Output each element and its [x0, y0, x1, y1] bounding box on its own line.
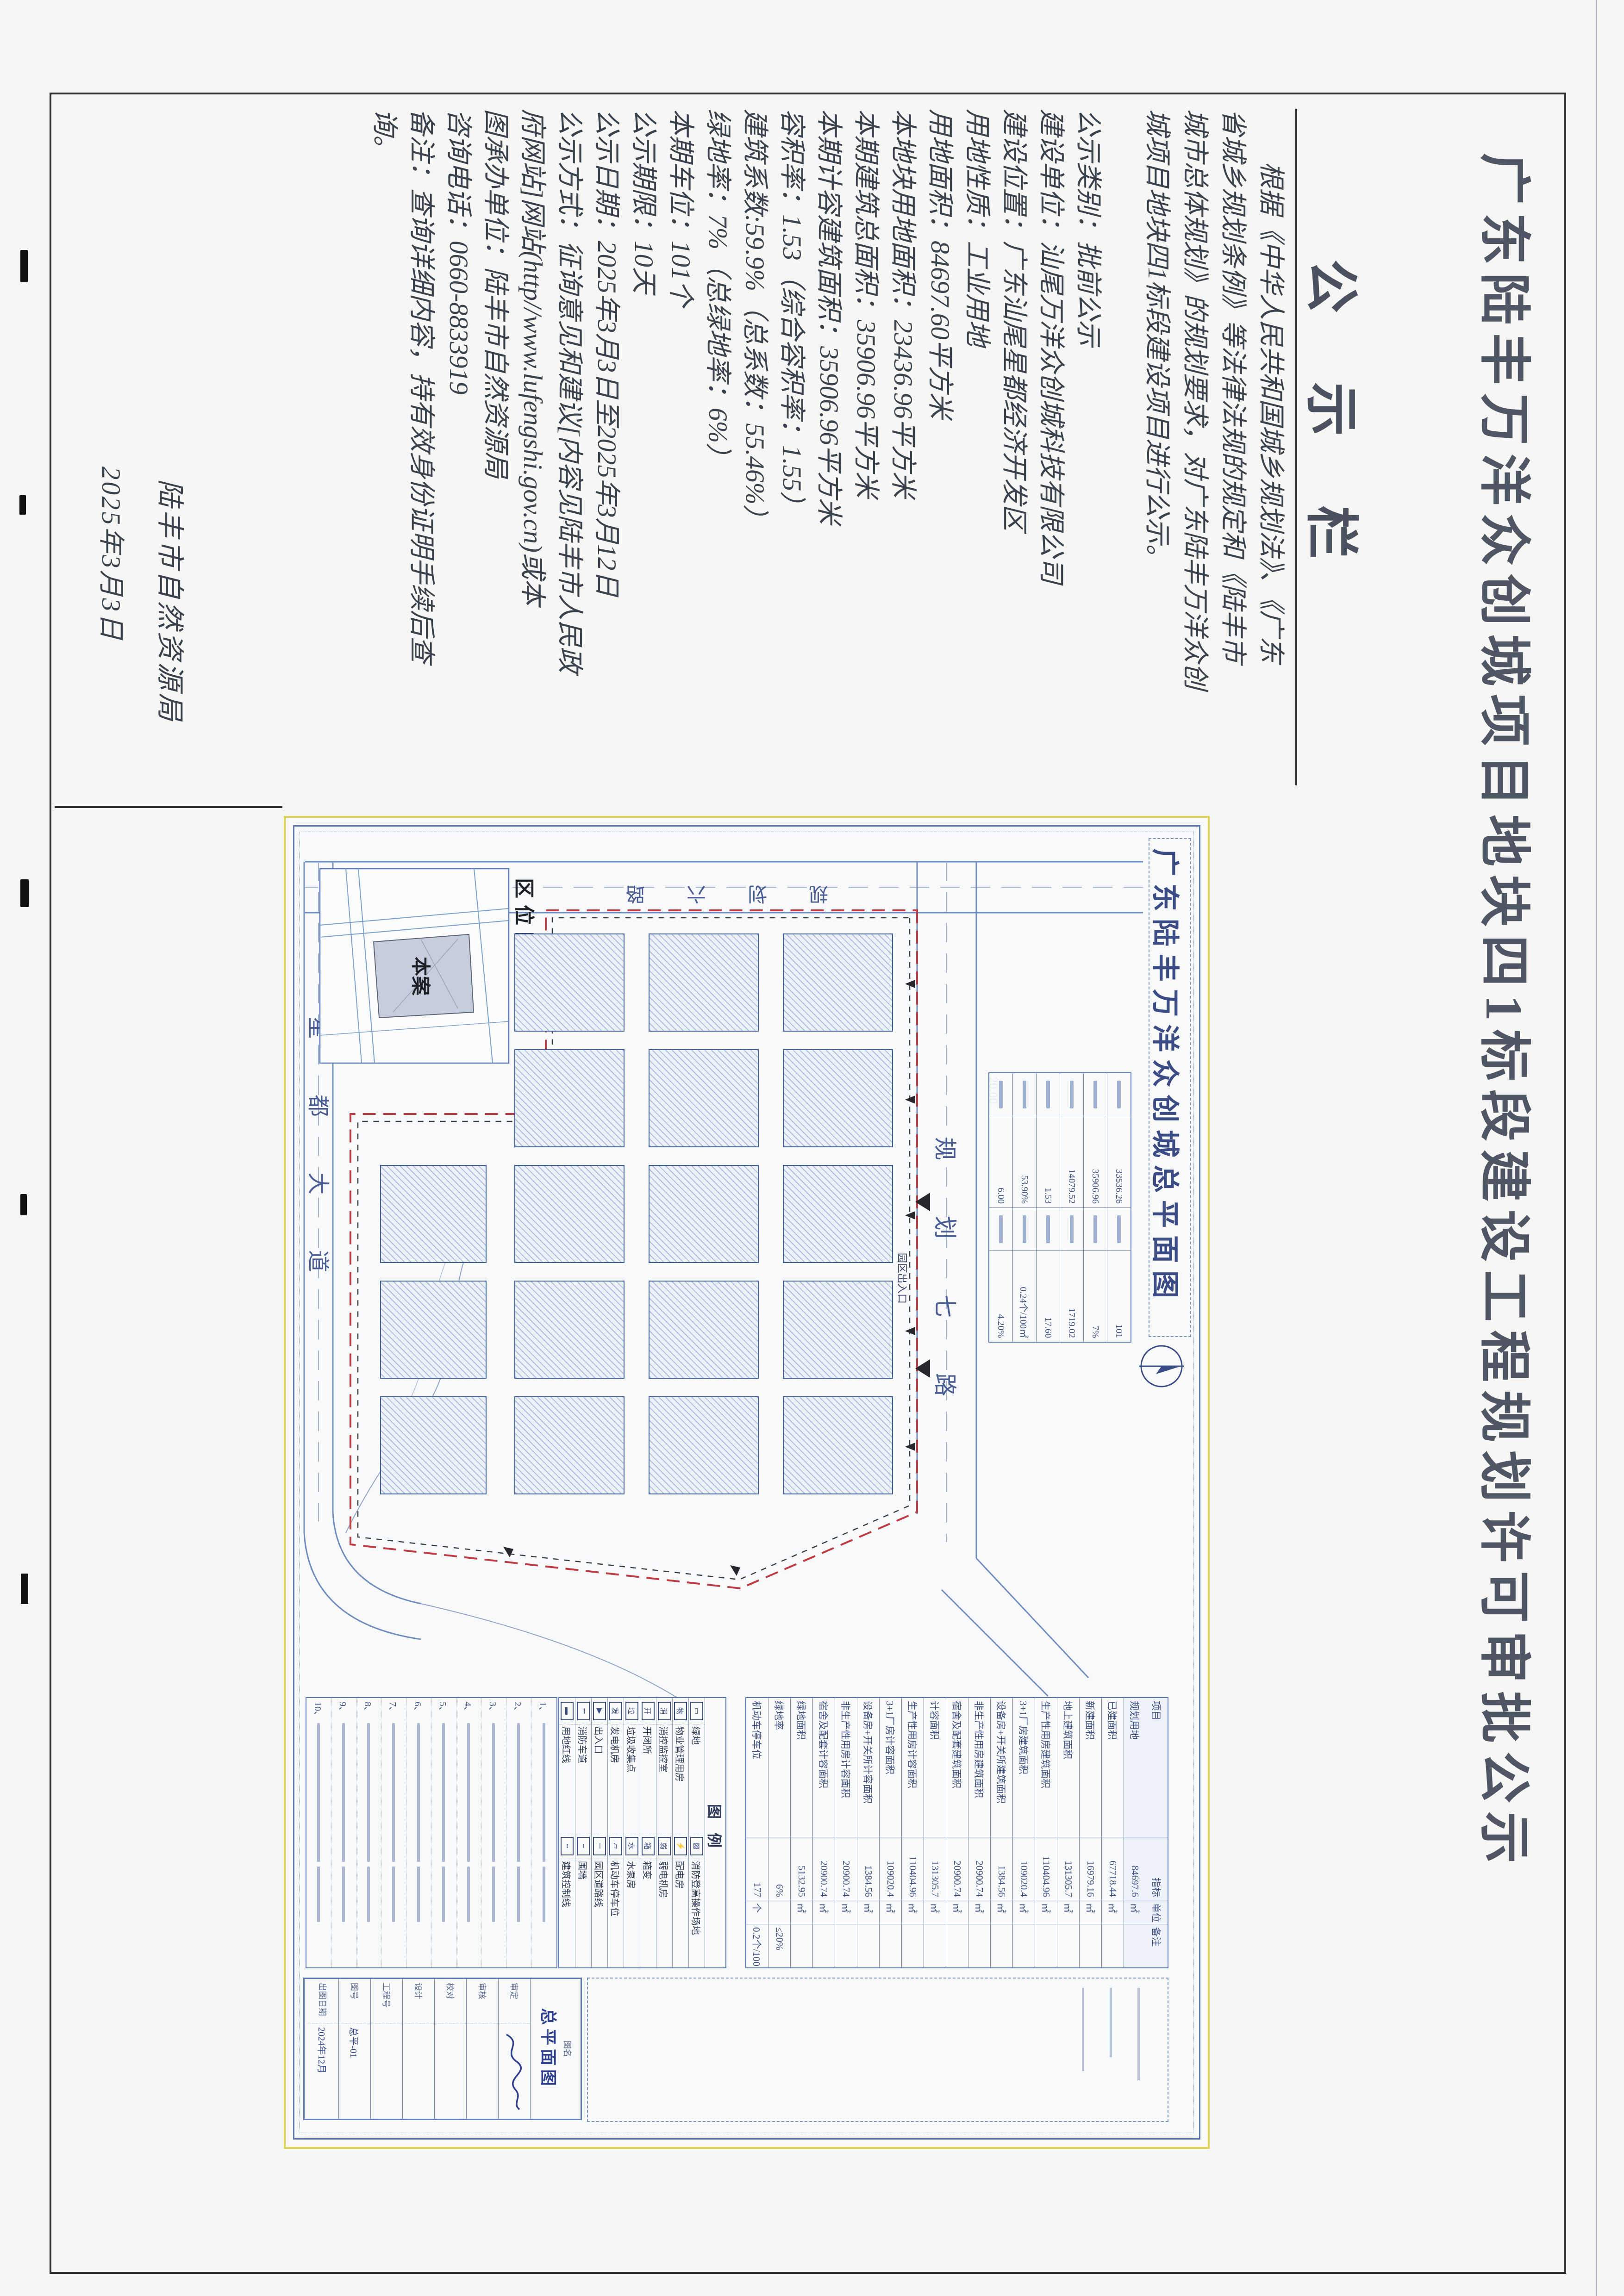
notice-paragraph-line: 城项目地块四1标段建设项目进行公示。: [1138, 109, 1176, 803]
legend-label: 箱变: [640, 1859, 656, 1967]
indicator-note: [880, 1924, 901, 1967]
title-block-row: 审核: [466, 1979, 498, 2119]
legend-symbol-icon: 物: [673, 1698, 688, 1724]
indicator-value: 110404.96: [902, 1837, 924, 1900]
note-text-bar: [343, 1723, 345, 1862]
notice-paragraph-line: 城市总体规划》的规划要求，对广东陆丰万洋众创: [1176, 109, 1214, 803]
indicator-unit: ㎡: [1013, 1900, 1035, 1924]
indicator-table-row: 3+1厂房建筑面积 109020.4 ㎡: [1013, 1698, 1035, 1967]
indicator-value: 17.60: [1037, 1250, 1060, 1342]
indicator-unit: ㎡: [968, 1900, 990, 1924]
indicator-unit: [768, 1900, 790, 1924]
legend-symbol-icon: ╌: [575, 1833, 591, 1859]
indicator-value: 16979.16: [1080, 1837, 1101, 1900]
indicator-table-header: 项目 指标 单位 备注: [1146, 1698, 1168, 1967]
title-block-field-label: 设计: [403, 1979, 434, 2023]
notice-detail-line: 建设位置：广东汕尾星都经济开发区: [995, 109, 1032, 812]
note-text-bar: [368, 1867, 370, 1922]
note-row: 3、: [481, 1698, 506, 1967]
note-text-bar: [543, 1867, 545, 1922]
indicator-value: 20900.74: [968, 1837, 990, 1900]
notice-detail-line: 公示方式：征询意见和建议[内容见陆丰市人民政: [551, 109, 588, 812]
table-label-bar: [1013, 1207, 1036, 1250]
indicator-table-row: 宿舍及配套计容面积 20900.74 ㎡: [813, 1698, 835, 1967]
indicator-value: 14079.52: [1060, 1116, 1083, 1207]
indicator-table-row: 绿地率 6% ≤20%: [768, 1698, 791, 1967]
note-text-bar: [543, 1723, 545, 1862]
drawing-name: 总平面图: [537, 2008, 562, 2090]
factory-block: [380, 1165, 487, 1263]
indicator-item: 新建面积: [1080, 1698, 1101, 1837]
indicator-item: 生产性用房建筑面积: [1035, 1698, 1057, 1837]
indicator-table-row: 宿舍及配套建筑面积 20900.74 ㎡: [946, 1698, 968, 1967]
indicator-table-row: 设备房+开关所计容面积 1384.56 ㎡: [857, 1698, 880, 1967]
indicator-unit: ㎡: [1124, 1900, 1146, 1924]
indicator-note: [924, 1924, 946, 1967]
indicator-value: 84697.6: [1124, 1837, 1146, 1900]
indicator-value: 177: [746, 1837, 768, 1900]
note-text-bar: [443, 1867, 445, 1922]
title-block-row: 设计: [402, 1979, 434, 2119]
title-block-field-label: 审核: [467, 1979, 498, 2023]
legend-symbol-icon: 垃: [624, 1698, 640, 1724]
note-number: 6、: [412, 1702, 425, 1723]
note-row: 10、: [306, 1698, 331, 1967]
indicator-table-row: 已建面积 67718.44 ㎡: [1102, 1698, 1124, 1967]
road-label-west: 规划六路: [584, 883, 828, 904]
header-underline: [1295, 109, 1297, 785]
phase-indicator-table: 33536.26 101 35906.96 7% 14079.52 1719.0…: [988, 1072, 1131, 1343]
indicator-value: 53.90%: [1013, 1116, 1036, 1207]
indicator-item: 绿地面积: [791, 1698, 812, 1837]
legend-row: 开 开闭所 箱 箱变: [640, 1698, 656, 1967]
legend-label: 围墙: [575, 1859, 591, 1967]
legend-symbol-icon: 弱: [656, 1833, 672, 1859]
indicator-value: 1.53: [1037, 1116, 1060, 1207]
indicator-unit: ㎡: [791, 1900, 812, 1924]
title-block-field-label: 审定: [499, 1979, 530, 2023]
phase-indicator-row: 35906.96 7%: [1084, 1073, 1107, 1342]
table-label-bar: [989, 1073, 1012, 1116]
factory-block: [649, 933, 759, 1032]
legend-label: 开闭所: [640, 1724, 656, 1833]
indicator-unit: ㎡: [991, 1900, 1012, 1924]
notes-box: 1、 2、 3、 4、 5、: [306, 1697, 557, 1968]
factory-block: [514, 933, 625, 1032]
indicator-value: 20900.74: [946, 1837, 968, 1900]
note-text-bar: [468, 1723, 470, 1862]
indicator-value: 6.00: [989, 1116, 1012, 1207]
note-number: 7、: [387, 1702, 400, 1723]
inset-site-label: 本案: [409, 957, 431, 996]
note-text-bar: [518, 1723, 520, 1862]
factory-block: [649, 1165, 759, 1263]
legend-row: ▶ 出入口 ─ 园区道路线: [592, 1698, 608, 1967]
title-block-field-value: 2024年12月: [316, 2023, 330, 2119]
indicator-note: ≤20%: [768, 1924, 790, 1967]
indicator-table-row: 地上建筑面积 131305.7 ㎡: [1057, 1698, 1080, 1967]
indicator-table-row: 3+1厂房计容面积 109020.4 ㎡: [880, 1698, 902, 1967]
notice-detail-line: 容积率：1.53（综合容积率：1.55）: [773, 109, 810, 812]
note-text-bar: [518, 1867, 520, 1922]
note-text-bar: [318, 1723, 320, 1862]
legend-symbol-icon: ┅: [559, 1833, 575, 1859]
table-label-bar: [1037, 1207, 1060, 1250]
indicator-item: 设备房+开关所建筑面积: [991, 1698, 1012, 1837]
header-value: 指标: [1146, 1837, 1168, 1900]
legend-symbol-icon: ▨: [689, 1833, 705, 1859]
note-text-bar: [443, 1723, 445, 1862]
notice-detail-line: 咨询电话：0660-8833919: [440, 109, 477, 812]
factory-block: [649, 1049, 759, 1147]
indicator-note: [1080, 1924, 1101, 1967]
indicator-unit: ㎡: [902, 1900, 924, 1924]
indicator-note: 0.2个/100㎡: [746, 1924, 768, 1967]
indicator-unit: ㎡: [1080, 1900, 1101, 1924]
note-text-bar: [493, 1723, 495, 1862]
note-text-bar: [368, 1723, 370, 1862]
legend-symbol-icon: 发: [608, 1698, 624, 1724]
legend-box: 图例 ▭ 绿地 ▨ 消防登高操作场地 物 物业管理用房 ⚡ 配电房 消 消控监控…: [558, 1697, 726, 1968]
indicator-value: 109020.4: [880, 1837, 901, 1900]
factory-block: [649, 1396, 759, 1494]
indicator-value: 4.20%: [989, 1250, 1012, 1342]
indicator-value: 5132.95: [791, 1837, 812, 1900]
legend-symbol-icon: 箱: [640, 1833, 656, 1859]
title-block-field-label: 出图日期: [307, 1979, 338, 2023]
indicator-value: 35906.96: [1084, 1116, 1107, 1207]
title-block-row: 校对: [434, 1979, 466, 2119]
note-number: 4、: [462, 1702, 475, 1723]
notice-detail-line: 公示期限：10天: [625, 109, 662, 812]
indicator-table-row: 非生产性用房建筑面积 20900.74 ㎡: [968, 1698, 991, 1967]
notice-detail-line: 图承办单位：陆丰市自然资源局: [477, 109, 514, 812]
north-arrow-icon: [1139, 1346, 1184, 1387]
legend-label: 配电房: [673, 1859, 688, 1967]
indicator-unit: ㎡: [880, 1900, 901, 1924]
legend-label: 消防车道: [575, 1724, 591, 1833]
legend-label: 水泵房: [624, 1859, 640, 1967]
indicator-note: [1102, 1924, 1124, 1967]
legend-symbol-icon: ⚡: [673, 1833, 688, 1859]
handwritten-signature: [500, 2030, 526, 2113]
title-block-field-label: 校对: [435, 1979, 466, 2023]
header-item: 项目: [1146, 1698, 1168, 1837]
legend-row: ▭ 绿地 ▨ 消防登高操作场地: [689, 1698, 705, 1967]
indicator-value: 0.24个/100㎡: [1013, 1250, 1036, 1342]
table-label-bar: [989, 1207, 1012, 1250]
location-inset-map: 本案: [320, 869, 509, 1063]
indicator-value: 131305.7: [1057, 1837, 1079, 1900]
scanned-public-notice-page: 广东陆丰万洋众创城项目地块四1标段建设工程规划许可审批公示 公示栏 根据《中华人…: [0, 0, 1624, 2296]
legend-label: 弱电机房: [656, 1859, 672, 1967]
factory-block: [514, 1165, 625, 1263]
note-row: 5、: [431, 1698, 456, 1967]
notice-paragraph-line: 根据《中华人民共和国城乡规划法》、《广东: [1252, 109, 1290, 803]
indicator-value: 109020.4: [1013, 1837, 1035, 1900]
legend-row: ▬ 用地红线 ┅ 建筑控制线: [559, 1698, 575, 1967]
factory-block: [649, 1281, 759, 1379]
notice-detail-line: 用地性质：工业用地: [958, 109, 995, 812]
note-number: 8、: [362, 1702, 375, 1723]
indicator-table-row: 生产性用房计容面积 110404.96 ㎡: [902, 1698, 924, 1967]
scan-artifact: [20, 879, 29, 907]
legend-symbol-icon: ▬: [559, 1698, 575, 1724]
legend-row: 物 物业管理用房 ⚡ 配电房: [673, 1698, 689, 1967]
indicator-value: 110404.96: [1035, 1837, 1057, 1900]
notice-detail-line: 建筑系数:59.9%（总系数：55.46%）: [736, 109, 773, 812]
indicator-value: 131305.7: [924, 1837, 946, 1900]
notice-detail-line: 本地块用地面积：23436.96平方米: [884, 109, 921, 812]
legend-symbol-icon: ▶: [592, 1698, 607, 1724]
legend-symbol-icon: 水: [624, 1833, 640, 1859]
legend-row: 消 消控监控室 弱 弱电机房: [656, 1698, 673, 1967]
indicator-note: [857, 1924, 879, 1967]
notice-detail-line: 公示类别：批前公示: [1069, 109, 1106, 812]
legend-row: 发 发电机房 ▱ 机动车停车位: [608, 1698, 624, 1967]
indicator-item: 非生产性用房计容面积: [835, 1698, 857, 1837]
legend-label: 机动车停车位: [608, 1859, 624, 1967]
drawing-title-block: 图名 总平面图 审定 审核 校对 设计: [303, 1978, 582, 2120]
indicator-table-row: 绿地面积 5132.95 ㎡: [791, 1698, 813, 1967]
legend-symbol-icon: ═: [575, 1698, 591, 1724]
phase-indicator-row: 1.53 17.60: [1037, 1073, 1060, 1342]
notice-detail-line: 本期车位：101个: [662, 109, 699, 812]
legend-symbol-icon: 消: [656, 1698, 672, 1724]
indicator-table-row: 非生产性用房计容面积 20900.74 ㎡: [835, 1698, 857, 1967]
note-text-bar: [468, 1867, 470, 1922]
table-label-bar: [1107, 1073, 1131, 1116]
indicator-item: 设备房+开关所计容面积: [857, 1698, 879, 1837]
note-row: 6、: [406, 1698, 431, 1967]
scan-artifact: [20, 250, 28, 282]
indicator-note: [1013, 1924, 1035, 1967]
indicator-unit: ㎡: [924, 1900, 946, 1924]
legend-label: 绿地: [689, 1724, 705, 1833]
table-label-bar: [1013, 1073, 1036, 1116]
note-number: 2、: [512, 1702, 525, 1723]
notice-detail-line: 本期建筑总面积：35906.96平方米: [847, 109, 884, 812]
indicator-value: 101: [1107, 1250, 1131, 1342]
legend-header: 图例: [705, 1698, 725, 1967]
header-unit: 单位: [1146, 1900, 1168, 1924]
indicator-table-row: 新建面积 16979.16 ㎡: [1080, 1698, 1102, 1967]
legend-row: ═ 消防车道 ╌ 围墙: [575, 1698, 592, 1967]
board-header: 公示栏: [1297, 259, 1375, 628]
note-text-bar: [418, 1723, 420, 1862]
indicator-item: 3+1厂房建筑面积: [1013, 1698, 1035, 1837]
note-number: 9、: [337, 1702, 350, 1723]
indicator-table-row: 机动车停车位 177 个 0.2个/100㎡: [746, 1698, 768, 1967]
notice-detail-line: 绿地率：7%（总绿地率：6%）: [699, 109, 736, 812]
legend-label: 园区道路线: [592, 1859, 607, 1967]
indicator-unit: 个: [746, 1900, 768, 1924]
note-row: 2、: [506, 1698, 531, 1967]
note-text-bar: [493, 1867, 495, 1922]
factory-block: [514, 1396, 625, 1494]
factory-block: [514, 1281, 625, 1379]
note-row: 1、: [531, 1698, 556, 1967]
indicator-value: 67718.44: [1102, 1837, 1124, 1900]
title-block-row: 图号 总平-01: [338, 1979, 370, 2119]
indicator-note: [1057, 1924, 1079, 1967]
note-number: 1、: [537, 1702, 551, 1723]
note-number: 5、: [437, 1702, 450, 1723]
notice-paragraph: 根据《中华人民共和国城乡规划法》、《广东省城乡规划条例》等法律法规的规定和《陆丰…: [1138, 109, 1290, 803]
legend-symbol-icon: ▱: [608, 1833, 624, 1859]
legend-symbol-icon: 开: [640, 1698, 656, 1724]
indicator-note: [902, 1924, 924, 1967]
indicator-value: 20900.74: [813, 1837, 835, 1900]
indicator-unit: ㎡: [813, 1900, 835, 1924]
table-label-bar: [1037, 1073, 1060, 1116]
drawing-name-cell: 图名 总平面图: [530, 1979, 581, 2119]
notice-detail-line: 用地面积：84697.60平方米: [921, 109, 958, 812]
legend-label: 物业管理用房: [673, 1724, 688, 1833]
table-label-bar: [1060, 1207, 1083, 1250]
title-block-field-label: 图号: [339, 1979, 370, 2023]
factory-block: [783, 1396, 893, 1494]
factory-block: [783, 933, 893, 1032]
note-text-bar: [393, 1867, 395, 1922]
indicator-value: 20900.74: [835, 1837, 857, 1900]
indicator-value: 33536.26: [1107, 1116, 1131, 1207]
title-block-row: 出图日期 2024年12月: [307, 1979, 338, 2119]
note-row: 9、: [331, 1698, 356, 1967]
indicator-item: 生产性用房计容面积: [902, 1698, 924, 1837]
indicator-note: [835, 1924, 857, 1967]
indicator-note: [946, 1924, 968, 1967]
indicator-item: 非生产性用房建筑面积: [968, 1698, 990, 1837]
note-row: 8、: [356, 1698, 381, 1967]
legend-symbol-icon: ▭: [689, 1698, 705, 1724]
legend-row: 垃 垃圾收集点 水 水泵房: [624, 1698, 640, 1967]
note-row: 7、: [381, 1698, 406, 1967]
indicator-note: [1035, 1924, 1057, 1967]
scan-artifact: [21, 1574, 28, 1604]
indicator-item: 计容面积: [924, 1698, 946, 1837]
issue-date: 2025年3月3日: [94, 467, 132, 641]
legend-label: 出入口: [592, 1724, 607, 1833]
indicator-unit: ㎡: [1102, 1900, 1124, 1924]
indicator-unit: ㎡: [835, 1900, 857, 1924]
phase-indicator-row: 14079.52 1719.02: [1060, 1073, 1084, 1342]
note-number: 10、: [312, 1702, 325, 1723]
table-label-bar: [1107, 1207, 1131, 1250]
legend-label: 垃圾收集点: [624, 1724, 640, 1833]
scan-paper-edge: [1596, 0, 1597, 2296]
indicator-item: 已建面积: [1102, 1698, 1124, 1837]
drawing-name-label: 图名: [562, 2041, 574, 2057]
table-label-bar: [1060, 1073, 1083, 1116]
indicator-item: 规划用地: [1124, 1698, 1146, 1837]
issuing-authority: 陆丰市自然资源局: [152, 479, 193, 723]
legend-label: 发电机房: [608, 1724, 624, 1833]
indicator-unit: ㎡: [857, 1900, 879, 1924]
notice-detail-line: 府网站]网站(http//www.lufengshi.gov.cn)或本: [514, 109, 551, 812]
notice-paragraph-line: 省城乡规划条例》等法律法规的规定和《陆丰市: [1214, 109, 1252, 803]
header-note: 备注: [1146, 1924, 1168, 1967]
notice-detail-lines: 公示类别：批前公示建设单位：汕尾万洋众创城科技有限公司建设位置：广东汕尾星都经济…: [366, 109, 1106, 812]
indicator-table-row: 设备房+开关所建筑面积 1384.56 ㎡: [991, 1698, 1013, 1967]
indicator-item: 宿舍及配套计容面积: [813, 1698, 835, 1837]
indicator-item: 3+1厂房计容面积: [880, 1698, 901, 1837]
section-divider-line: [55, 806, 282, 808]
indicator-value: 6%: [768, 1837, 790, 1900]
entrance-label: 园区出入口: [896, 1253, 908, 1304]
note-number: 3、: [487, 1702, 500, 1723]
indicator-item: 机动车停车位: [746, 1698, 768, 1837]
legend-label: 消防登高操作场地: [689, 1859, 705, 1967]
factory-block: [783, 1165, 893, 1263]
indicator-unit: ㎡: [946, 1900, 968, 1924]
factory-block: [514, 1049, 625, 1147]
note-text-bar: [318, 1867, 320, 1922]
legend-symbol-icon: ─: [592, 1833, 607, 1859]
legend-label: 消控监控室: [656, 1724, 672, 1833]
factory-block: [380, 1396, 487, 1494]
table-label-bar: [1084, 1073, 1107, 1116]
legend-label: 用地红线: [559, 1724, 575, 1833]
notice-detail-line: 询。: [366, 109, 403, 812]
title-block-field-label: 工程号: [371, 1979, 402, 2023]
indicator-unit: ㎡: [1057, 1900, 1079, 1924]
notice-detail-line: 建设单位：汕尾万洋众创城科技有限公司: [1032, 109, 1069, 812]
table-label-bar: [1084, 1207, 1107, 1250]
indicator-note: [991, 1924, 1012, 1967]
scan-artifact: [20, 1194, 27, 1215]
notice-detail-line: 本期计容建筑面积：35906.96平方米: [810, 109, 847, 812]
factory-block: [380, 1281, 487, 1379]
factory-block: [783, 1281, 893, 1379]
site-plan-sheet: 广东陆丰万洋众创城总平面图: [284, 816, 1210, 2149]
landscape-document: 广东陆丰万洋众创城项目地块四1标段建设工程规划许可审批公示 公示栏 根据《中华人…: [0, 0, 1624, 2296]
notice-detail-line: 备注：查询详细内容，持有效身份证明手续后查: [403, 109, 440, 812]
title-block-row: 工程号: [370, 1979, 402, 2119]
indicator-value: 1384.56: [991, 1837, 1012, 1900]
indicator-table-row: 规划用地 84697.6 ㎡: [1124, 1698, 1146, 1967]
page-title: 广东陆丰万洋众创城项目地块四1标段建设工程规划许可审批公示: [1471, 153, 1546, 2208]
road-label-north: 规划七路: [932, 1137, 958, 1452]
indicator-note: [791, 1924, 812, 1967]
phase-indicator-row: 6.00 4.20%: [989, 1073, 1013, 1342]
note-text-bar: [393, 1723, 395, 1862]
phase-indicator-row: 53.90% 0.24个/100㎡: [1013, 1073, 1037, 1342]
legend-label: 建筑控制线: [559, 1859, 575, 1967]
indicator-value: 7%: [1084, 1250, 1107, 1342]
title-block-field-value: 总平-01: [348, 2023, 362, 2119]
indicator-note: [1124, 1924, 1146, 1967]
indicator-note: [813, 1924, 835, 1967]
indicator-table-row: 计容面积 131305.7 ㎡: [924, 1698, 946, 1967]
indicator-item: 绿地率: [768, 1698, 790, 1837]
phase-indicator-row: 33536.26 101: [1107, 1073, 1131, 1342]
economic-indicator-table: 项目 指标 单位 备注 规划用地 84697.6 ㎡ 已建面积 67718.44…: [745, 1697, 1168, 1968]
indicator-table-row: 生产性用房建筑面积 110404.96 ㎡: [1035, 1698, 1057, 1967]
scan-artifact: [19, 495, 26, 515]
remarks-strip: [587, 1978, 1168, 2122]
factory-block: [783, 1049, 893, 1147]
note-text-bar: [418, 1867, 420, 1922]
indicator-note: [968, 1924, 990, 1967]
note-text-bar: [343, 1867, 345, 1922]
indicator-value: 1719.02: [1060, 1250, 1083, 1342]
indicator-value: 1384.56: [857, 1837, 879, 1900]
indicator-item: 宿舍及配套建筑面积: [946, 1698, 968, 1837]
indicator-unit: ㎡: [1035, 1900, 1057, 1924]
indicator-item: 地上建筑面积: [1057, 1698, 1079, 1837]
note-row: 4、: [456, 1698, 481, 1967]
